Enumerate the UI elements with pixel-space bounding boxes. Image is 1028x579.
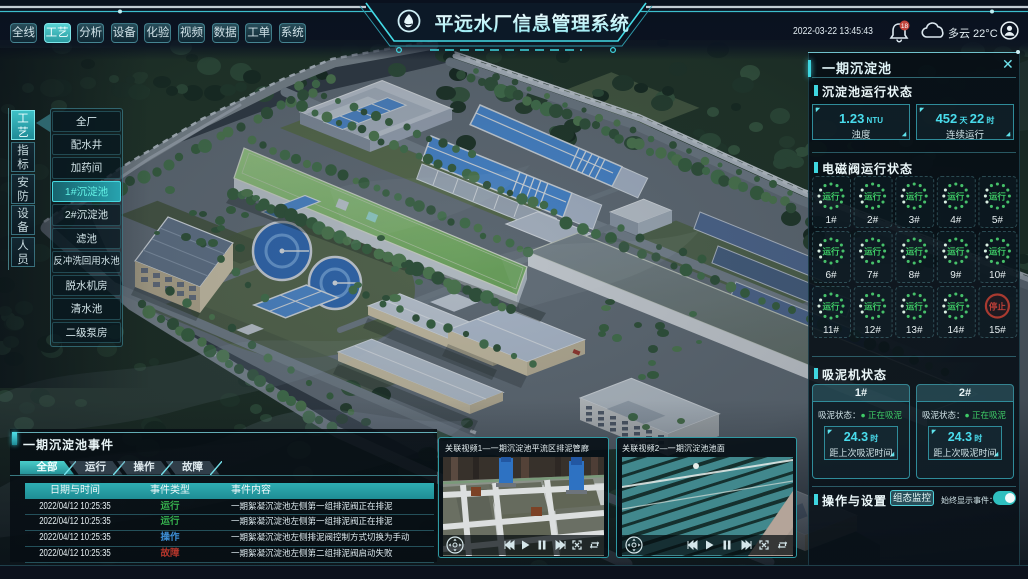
svg-text:运行: 运行 — [864, 302, 882, 312]
svg-text:8#: 8# — [909, 270, 921, 281]
svg-text:5#: 5# — [992, 215, 1004, 226]
svg-text:9#: 9# — [950, 270, 962, 281]
svg-text:3#: 3# — [909, 215, 921, 226]
svg-text:运行: 运行 — [947, 302, 965, 312]
svg-text:运行: 运行 — [822, 192, 840, 202]
svg-text:7#: 7# — [867, 270, 879, 281]
svg-text:运行: 运行 — [906, 247, 924, 257]
svg-text:18: 18 — [901, 23, 909, 30]
svg-text:运行: 运行 — [864, 247, 882, 257]
svg-text:12#: 12# — [864, 325, 881, 336]
svg-text:10#: 10# — [989, 270, 1006, 281]
svg-text:运行: 运行 — [947, 192, 965, 202]
svg-text:运行: 运行 — [989, 247, 1007, 257]
svg-text:4#: 4# — [950, 215, 962, 226]
svg-text:11#: 11# — [823, 325, 839, 336]
svg-text:6#: 6# — [825, 270, 837, 281]
svg-text:2#: 2# — [867, 215, 879, 226]
svg-text:14#: 14# — [947, 325, 964, 336]
svg-text:运行: 运行 — [989, 192, 1007, 202]
svg-text:运行: 运行 — [906, 192, 924, 202]
svg-text:运行: 运行 — [822, 302, 840, 312]
svg-text:15#: 15# — [989, 325, 1006, 336]
svg-text:运行: 运行 — [906, 302, 924, 312]
svg-text:13#: 13# — [906, 325, 923, 336]
svg-text:运行: 运行 — [822, 247, 840, 257]
svg-text:1#: 1# — [825, 215, 837, 226]
svg-text:停止: 停止 — [989, 302, 1007, 312]
svg-text:运行: 运行 — [864, 192, 882, 202]
svg-text:运行: 运行 — [947, 247, 965, 257]
